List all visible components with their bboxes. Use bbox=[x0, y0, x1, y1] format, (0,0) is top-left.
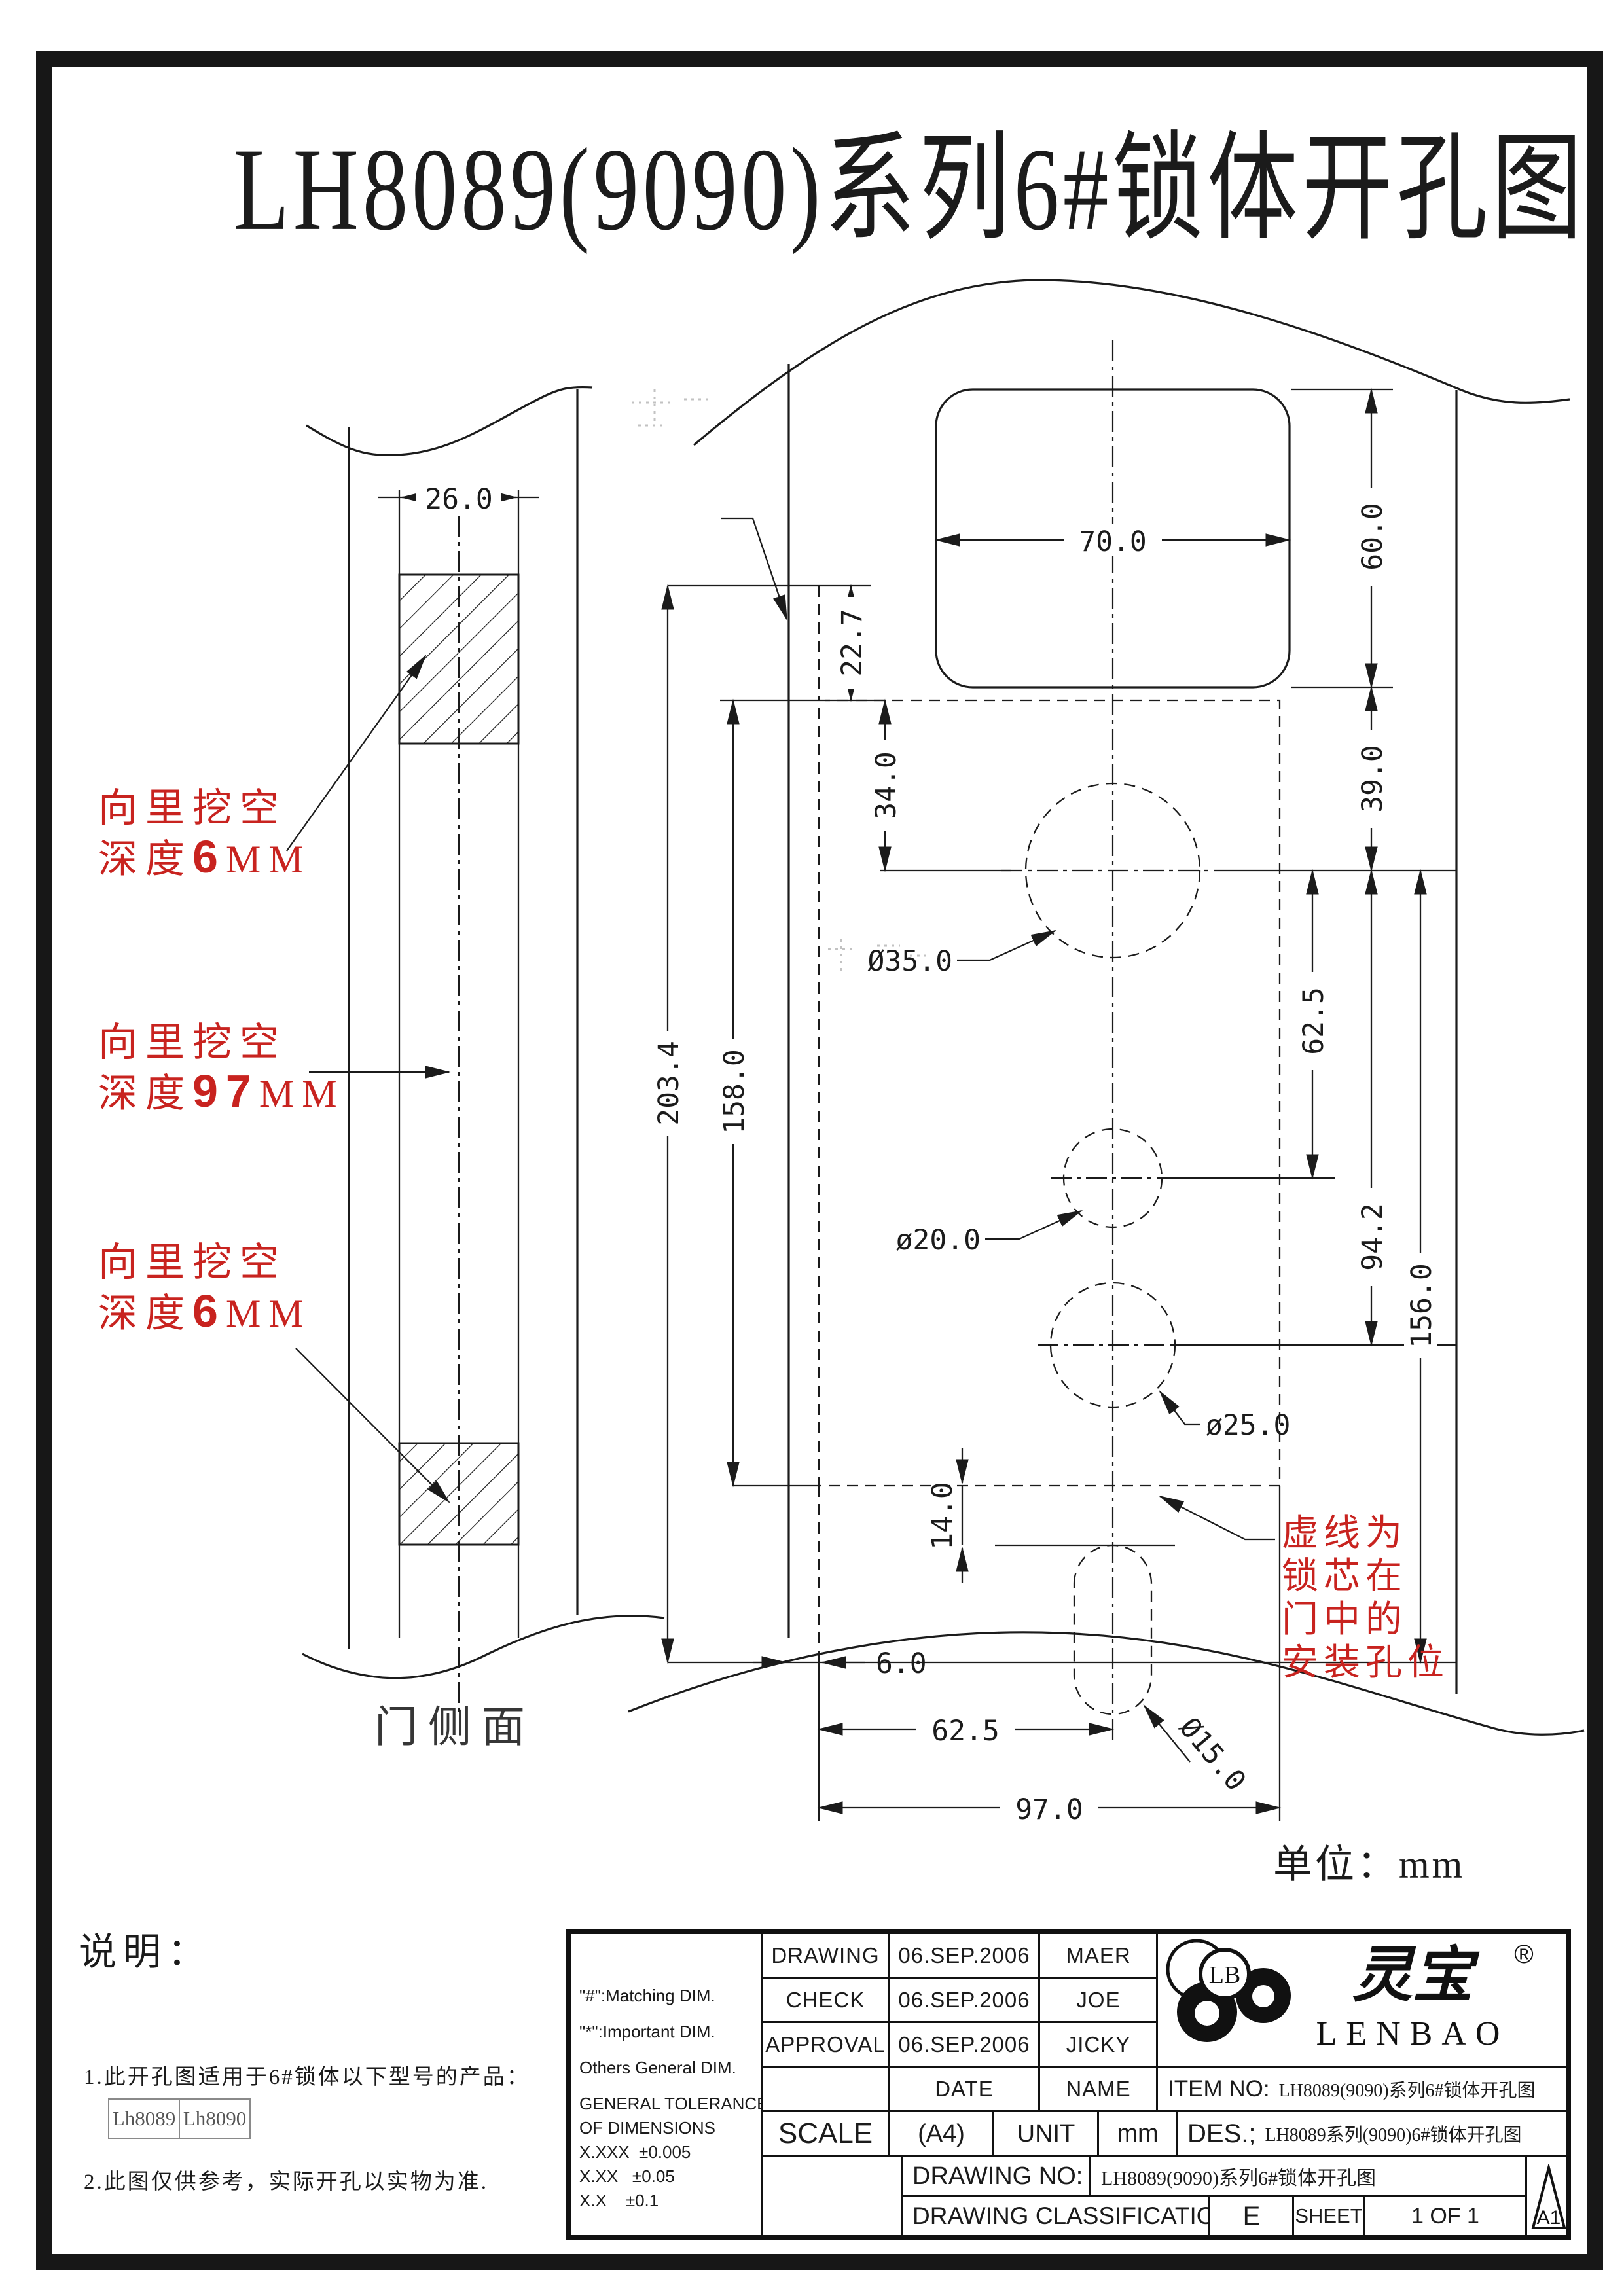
legend-column: "#":Matching DIM. "*":Important DIM. Oth… bbox=[570, 1933, 762, 2236]
logo-hole-1 bbox=[1195, 2001, 1219, 2026]
legend-others: Others General DIM. bbox=[579, 2058, 736, 2078]
item-no-label: ITEM NO: bbox=[1168, 2076, 1270, 2102]
dim-spacing-1560: 156.0 bbox=[1405, 1263, 1438, 1348]
empty-cell bbox=[762, 2067, 889, 2111]
leader-dia25 bbox=[1160, 1391, 1200, 1424]
note-item-2: 2.此图仅供参考，实际开孔以实物为准. bbox=[84, 2164, 488, 2195]
front-top-break-line bbox=[694, 280, 1570, 445]
item-no-cell: ITEM NO: LH8089(9090)系列6#锁体开孔图 bbox=[1157, 2067, 1567, 2111]
scale-value: (A4) bbox=[889, 2111, 994, 2156]
bottom-hatched-cutout bbox=[399, 1443, 518, 1545]
annotation-line: 向里挖空 bbox=[98, 784, 312, 833]
logo-cell: LB 灵宝 ® LENBAO bbox=[1157, 1933, 1567, 2067]
side-view-bottom-break-line bbox=[302, 1616, 664, 1678]
des-cell: DES.; LH8089系列(9090)6#锁体开孔图 bbox=[1177, 2111, 1567, 2156]
dim-spacing-625-right: 62.5 bbox=[1297, 987, 1330, 1055]
sheet-label: SHEET bbox=[1293, 2197, 1364, 2236]
annotation-line: 门中的 bbox=[1282, 1598, 1449, 1641]
sheet-value: 1 OF 1 bbox=[1364, 2197, 1526, 2236]
title-block: "#":Matching DIM. "*":Important DIM. Oth… bbox=[566, 1929, 1571, 2240]
dim-dia35: Ø35.0 bbox=[868, 945, 952, 978]
dim-140-group: 14.0 bbox=[926, 1482, 959, 1550]
model-cell: Lh8089 bbox=[108, 2098, 180, 2139]
faded-annotation-marks-top bbox=[632, 389, 713, 425]
notes-heading-wrap: 说明： bbox=[79, 1921, 212, 1976]
dim-spacing-942: 94.2 bbox=[1356, 1203, 1389, 1271]
unit-note: 单位：mm bbox=[1273, 1833, 1465, 1890]
dim-dia25: ø25.0 bbox=[1206, 1409, 1290, 1442]
approval-name-approval: JICKY bbox=[1039, 2022, 1157, 2067]
approval-date-check: 06.SEP.2006 bbox=[889, 1978, 1039, 2022]
dim-dia20: ø20.0 bbox=[896, 1224, 981, 1257]
projection-symbol-cell bbox=[762, 2156, 902, 2236]
red-leaders bbox=[287, 656, 1275, 1539]
top-hatched-cutout bbox=[399, 575, 518, 744]
des-value: LH8089系列(9090)6#锁体开孔图 bbox=[1265, 2121, 1521, 2147]
annotation-line: 向里挖空 bbox=[98, 1018, 345, 1067]
annotation-dashed-note: 虚线为 锁芯在 门中的 安装孔位 bbox=[1282, 1512, 1449, 1685]
lenbao-logo: LB 灵宝 ® LENBAO bbox=[1157, 1933, 1567, 2067]
unit-value: mm bbox=[1098, 2111, 1177, 2156]
dim-spacing-625-bottom: 62.5 bbox=[931, 1715, 1000, 1748]
des-label: DES.; bbox=[1187, 2119, 1255, 2149]
dim-offset-390: 39.0 bbox=[1356, 745, 1389, 813]
format-triangle: A1 bbox=[1530, 2164, 1567, 2232]
date-header: DATE bbox=[889, 2067, 1039, 2111]
dim-340-group: 34.0 bbox=[869, 740, 903, 831]
scale-label: SCALE bbox=[762, 2111, 889, 2156]
annotation-hollow-bottom: 向里挖空 深度6MM bbox=[98, 1238, 312, 1338]
annotation-line: 虚线为 bbox=[1282, 1512, 1449, 1555]
name-header: NAME bbox=[1039, 2067, 1157, 2111]
annotation-line: 深度97MM bbox=[98, 1067, 345, 1118]
tolerance-row: X.X ±0.1 bbox=[579, 2191, 659, 2211]
dim-offset-140: 14.0 bbox=[926, 1482, 959, 1550]
notes-heading: 说明： bbox=[79, 1921, 212, 1976]
classification-value: E bbox=[1210, 2197, 1293, 2236]
drawing-no-value-cell: LH8089(9090)系列6#锁体开孔图 bbox=[1091, 2156, 1526, 2197]
logo-hole-2 bbox=[1252, 1985, 1274, 2007]
leader-hollow-bottom bbox=[296, 1348, 449, 1502]
drawing-no-label-cell: DRAWING NO: bbox=[902, 2156, 1091, 2197]
leader-dashed-note bbox=[1160, 1496, 1275, 1539]
dim-60-group: 60.0 bbox=[1355, 488, 1389, 586]
annotation-line: 安装孔位 bbox=[1282, 1641, 1449, 1685]
item-no-value: LH8089(9090)系列6#锁体开孔图 bbox=[1279, 2076, 1536, 2102]
legend-important: "*":Important DIM. bbox=[579, 2022, 715, 2042]
dim-total-height-group: 203.4 bbox=[651, 1031, 685, 1136]
dim-body-width: 97.0 bbox=[1015, 1793, 1083, 1826]
tolerance-line-2: OF DIMENSIONS bbox=[579, 2118, 715, 2138]
drawing-no-value: LH8089(9090)系列6#锁体开孔图 bbox=[1101, 2162, 1376, 2191]
drawing-no-label: DRAWING NO: bbox=[912, 2162, 1083, 2191]
unit-label: UNIT bbox=[994, 2111, 1098, 2156]
drawing-sheet: LH8089(9090)系列6#锁体开孔图 26.0 bbox=[0, 0, 1624, 2296]
tolerance-row: X.XXX ±0.005 bbox=[579, 2142, 691, 2162]
side-view-label: 门侧面 bbox=[367, 1692, 543, 1755]
dim-offset-340: 34.0 bbox=[870, 751, 903, 819]
approval-label-check: CHECK bbox=[762, 1978, 889, 2022]
dim-total-height: 203.4 bbox=[653, 1041, 685, 1125]
legend-matching: "#":Matching DIM. bbox=[579, 1986, 715, 2006]
annotation-line: 向里挖空 bbox=[98, 1238, 312, 1287]
dim-handle-width: 70.0 bbox=[1079, 526, 1147, 558]
annotation-line: 深度6MM bbox=[98, 833, 312, 884]
approval-label-drawing: DRAWING bbox=[762, 1933, 889, 1978]
logo-monogram: LB bbox=[1209, 1962, 1241, 1989]
tolerance-row: X.XX ±0.05 bbox=[579, 2166, 675, 2187]
note-item-1: 1.此开孔图适用于6#锁体以下型号的产品： bbox=[84, 2059, 530, 2090]
faded-annotation-leader bbox=[721, 518, 787, 619]
format-cell: A1 bbox=[1526, 2156, 1567, 2236]
model-table: Lh8089 Lh8090 bbox=[108, 2098, 249, 2139]
side-view: 26.0 bbox=[302, 387, 664, 1715]
logo-latin-name: LENBAO bbox=[1316, 2015, 1509, 2053]
annotation-hollow-middle: 向里挖空 深度97MM bbox=[98, 1018, 345, 1118]
approval-name-check: JOE bbox=[1039, 1978, 1157, 2022]
dim-1560-group: 156.0 bbox=[1404, 1253, 1438, 1358]
dim-227-group: 22.7 bbox=[835, 597, 869, 689]
leader-dia20 bbox=[985, 1211, 1081, 1239]
approval-name-drawing: MAER bbox=[1039, 1933, 1157, 1978]
annotation-line: 深度6MM bbox=[98, 1287, 312, 1338]
dim-handle-height: 60.0 bbox=[1356, 503, 1389, 571]
dim-942-group: 94.2 bbox=[1355, 1188, 1389, 1286]
approval-date-approval: 06.SEP.2006 bbox=[889, 2022, 1039, 2067]
classification-label: DRAWING CLASSIFICATION bbox=[912, 2202, 1233, 2230]
logo-cn-name: 灵宝 bbox=[1352, 1942, 1480, 2009]
dim-625r-group: 62.5 bbox=[1296, 972, 1330, 1070]
annotation-hollow-top: 向里挖空 深度6MM bbox=[98, 784, 312, 884]
dim-offset-227: 22.7 bbox=[836, 609, 869, 677]
model-cell: Lh8090 bbox=[179, 2098, 251, 2139]
tolerance-line-1: GENERAL TOLERANCE bbox=[579, 2094, 768, 2114]
dim-edge-gap: 6.0 bbox=[876, 1647, 927, 1680]
dim-cut-height: 158.0 bbox=[718, 1049, 751, 1134]
dim-390-group: 39.0 bbox=[1355, 730, 1389, 828]
registered-mark: ® bbox=[1514, 1940, 1533, 1969]
classification-label-cell: DRAWING CLASSIFICATION bbox=[902, 2197, 1210, 2236]
leader-dia35 bbox=[957, 931, 1055, 960]
format-code: A1 bbox=[1537, 2207, 1561, 2229]
annotation-line: 锁芯在 bbox=[1282, 1555, 1449, 1598]
dim-cut-height-group: 158.0 bbox=[717, 1039, 751, 1144]
dim-strip-width: 26.0 bbox=[425, 483, 493, 516]
approval-label-approval: APPROVAL bbox=[762, 2022, 889, 2067]
approval-date-drawing: 06.SEP.2006 bbox=[889, 1933, 1039, 1978]
